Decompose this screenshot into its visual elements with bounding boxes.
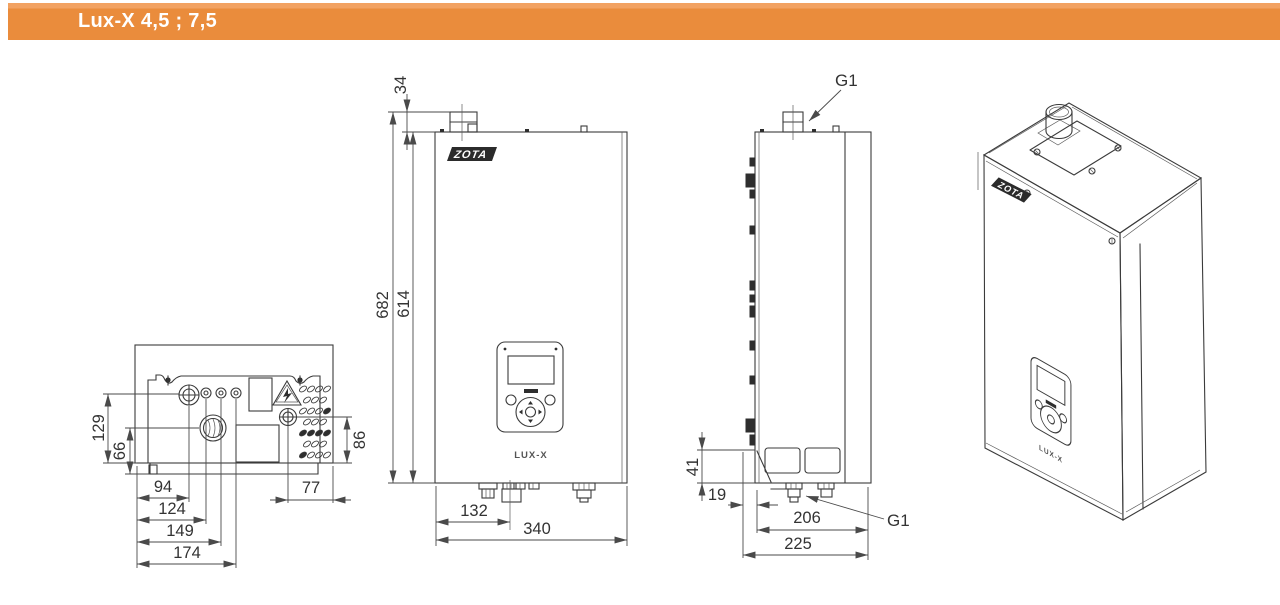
g1-label-top: G1	[835, 71, 858, 90]
dim-label: 94	[154, 478, 172, 496]
iso-luxx-label: LUX-X	[1039, 443, 1063, 466]
g1-label-bottom: G1	[887, 511, 910, 530]
g1-top: G1	[809, 71, 858, 121]
iso-screws	[1024, 145, 1121, 244]
svg-text:ZOTA: ZOTA	[452, 149, 488, 161]
isometric-view: ZOTA LUX-X	[978, 103, 1206, 520]
dim-label: 129	[90, 414, 108, 442]
dim-614: 614	[395, 132, 413, 483]
foot-strip	[150, 463, 318, 474]
luxx-label: LUX-X	[514, 450, 548, 461]
iso-front-face	[984, 155, 1123, 520]
iso-control-panel: LUX-X	[1031, 355, 1071, 470]
safety-valve-fitting	[179, 385, 199, 405]
top-pipe-fitting	[450, 104, 477, 141]
dim-label: 124	[158, 500, 186, 518]
control-panel	[497, 342, 563, 432]
dim-label: 34	[392, 76, 410, 94]
warning-triangle-icon	[273, 381, 301, 405]
dim-label: 149	[166, 522, 194, 540]
g1-bottom: G1	[806, 496, 910, 530]
dim-77: 77	[270, 426, 351, 503]
dpad	[516, 398, 545, 427]
junction-box	[765, 448, 800, 473]
dim-label: 77	[302, 479, 320, 497]
side-top-pipe	[783, 105, 803, 140]
cable-gland-center	[200, 415, 226, 441]
iso-right-face	[1120, 178, 1206, 520]
front-body	[435, 132, 627, 483]
dim-label: 614	[395, 290, 413, 318]
iso-access-panel	[1030, 121, 1121, 175]
dim-label: 86	[351, 431, 369, 449]
dim-label: 682	[374, 291, 392, 319]
dim-66: 66	[111, 428, 199, 474]
panel-pin	[165, 376, 302, 385]
dim-label: 132	[460, 502, 488, 520]
dim-19: 19	[708, 452, 778, 558]
earth-screw	[280, 409, 297, 426]
bottom-glands	[479, 483, 595, 502]
menu-button	[524, 389, 538, 393]
right-button	[545, 395, 555, 405]
page: Lux-X 4,5 ; 7,5	[0, 0, 1280, 605]
dim-label: 206	[793, 509, 821, 527]
junction-box	[805, 448, 840, 473]
top-bracket-tab	[581, 126, 587, 132]
dim-label: 225	[784, 535, 812, 553]
zota-logo: ZOTA	[447, 147, 497, 161]
dim-132: 132	[436, 480, 510, 546]
dim-label: 19	[708, 486, 726, 504]
technical-drawing: 129 66 86 94	[0, 0, 1280, 605]
bottom-view: 129 66 86 94	[90, 345, 369, 568]
dim-label: 340	[523, 520, 551, 538]
dim-label: 66	[111, 442, 129, 460]
rear-screws	[746, 158, 755, 445]
svg-text:ZOTA: ZOTA	[996, 179, 1026, 201]
terminal-box	[249, 378, 272, 411]
side-view: G1	[684, 71, 910, 560]
access-hatch	[236, 425, 279, 462]
left-button	[506, 395, 516, 405]
display	[508, 356, 554, 384]
side-body	[755, 132, 871, 483]
vent-holes	[298, 385, 331, 459]
dim-label: 174	[173, 544, 201, 562]
dim-label: 41	[684, 458, 702, 476]
side-bottom-fittings	[771, 483, 834, 502]
front-view: ZOTA LUX-X	[374, 76, 627, 546]
small-fitting	[201, 388, 241, 398]
dim-34: 34	[388, 76, 450, 150]
dim-225: 225	[743, 535, 868, 555]
dim-stack: 94 124 149 174	[137, 399, 236, 568]
